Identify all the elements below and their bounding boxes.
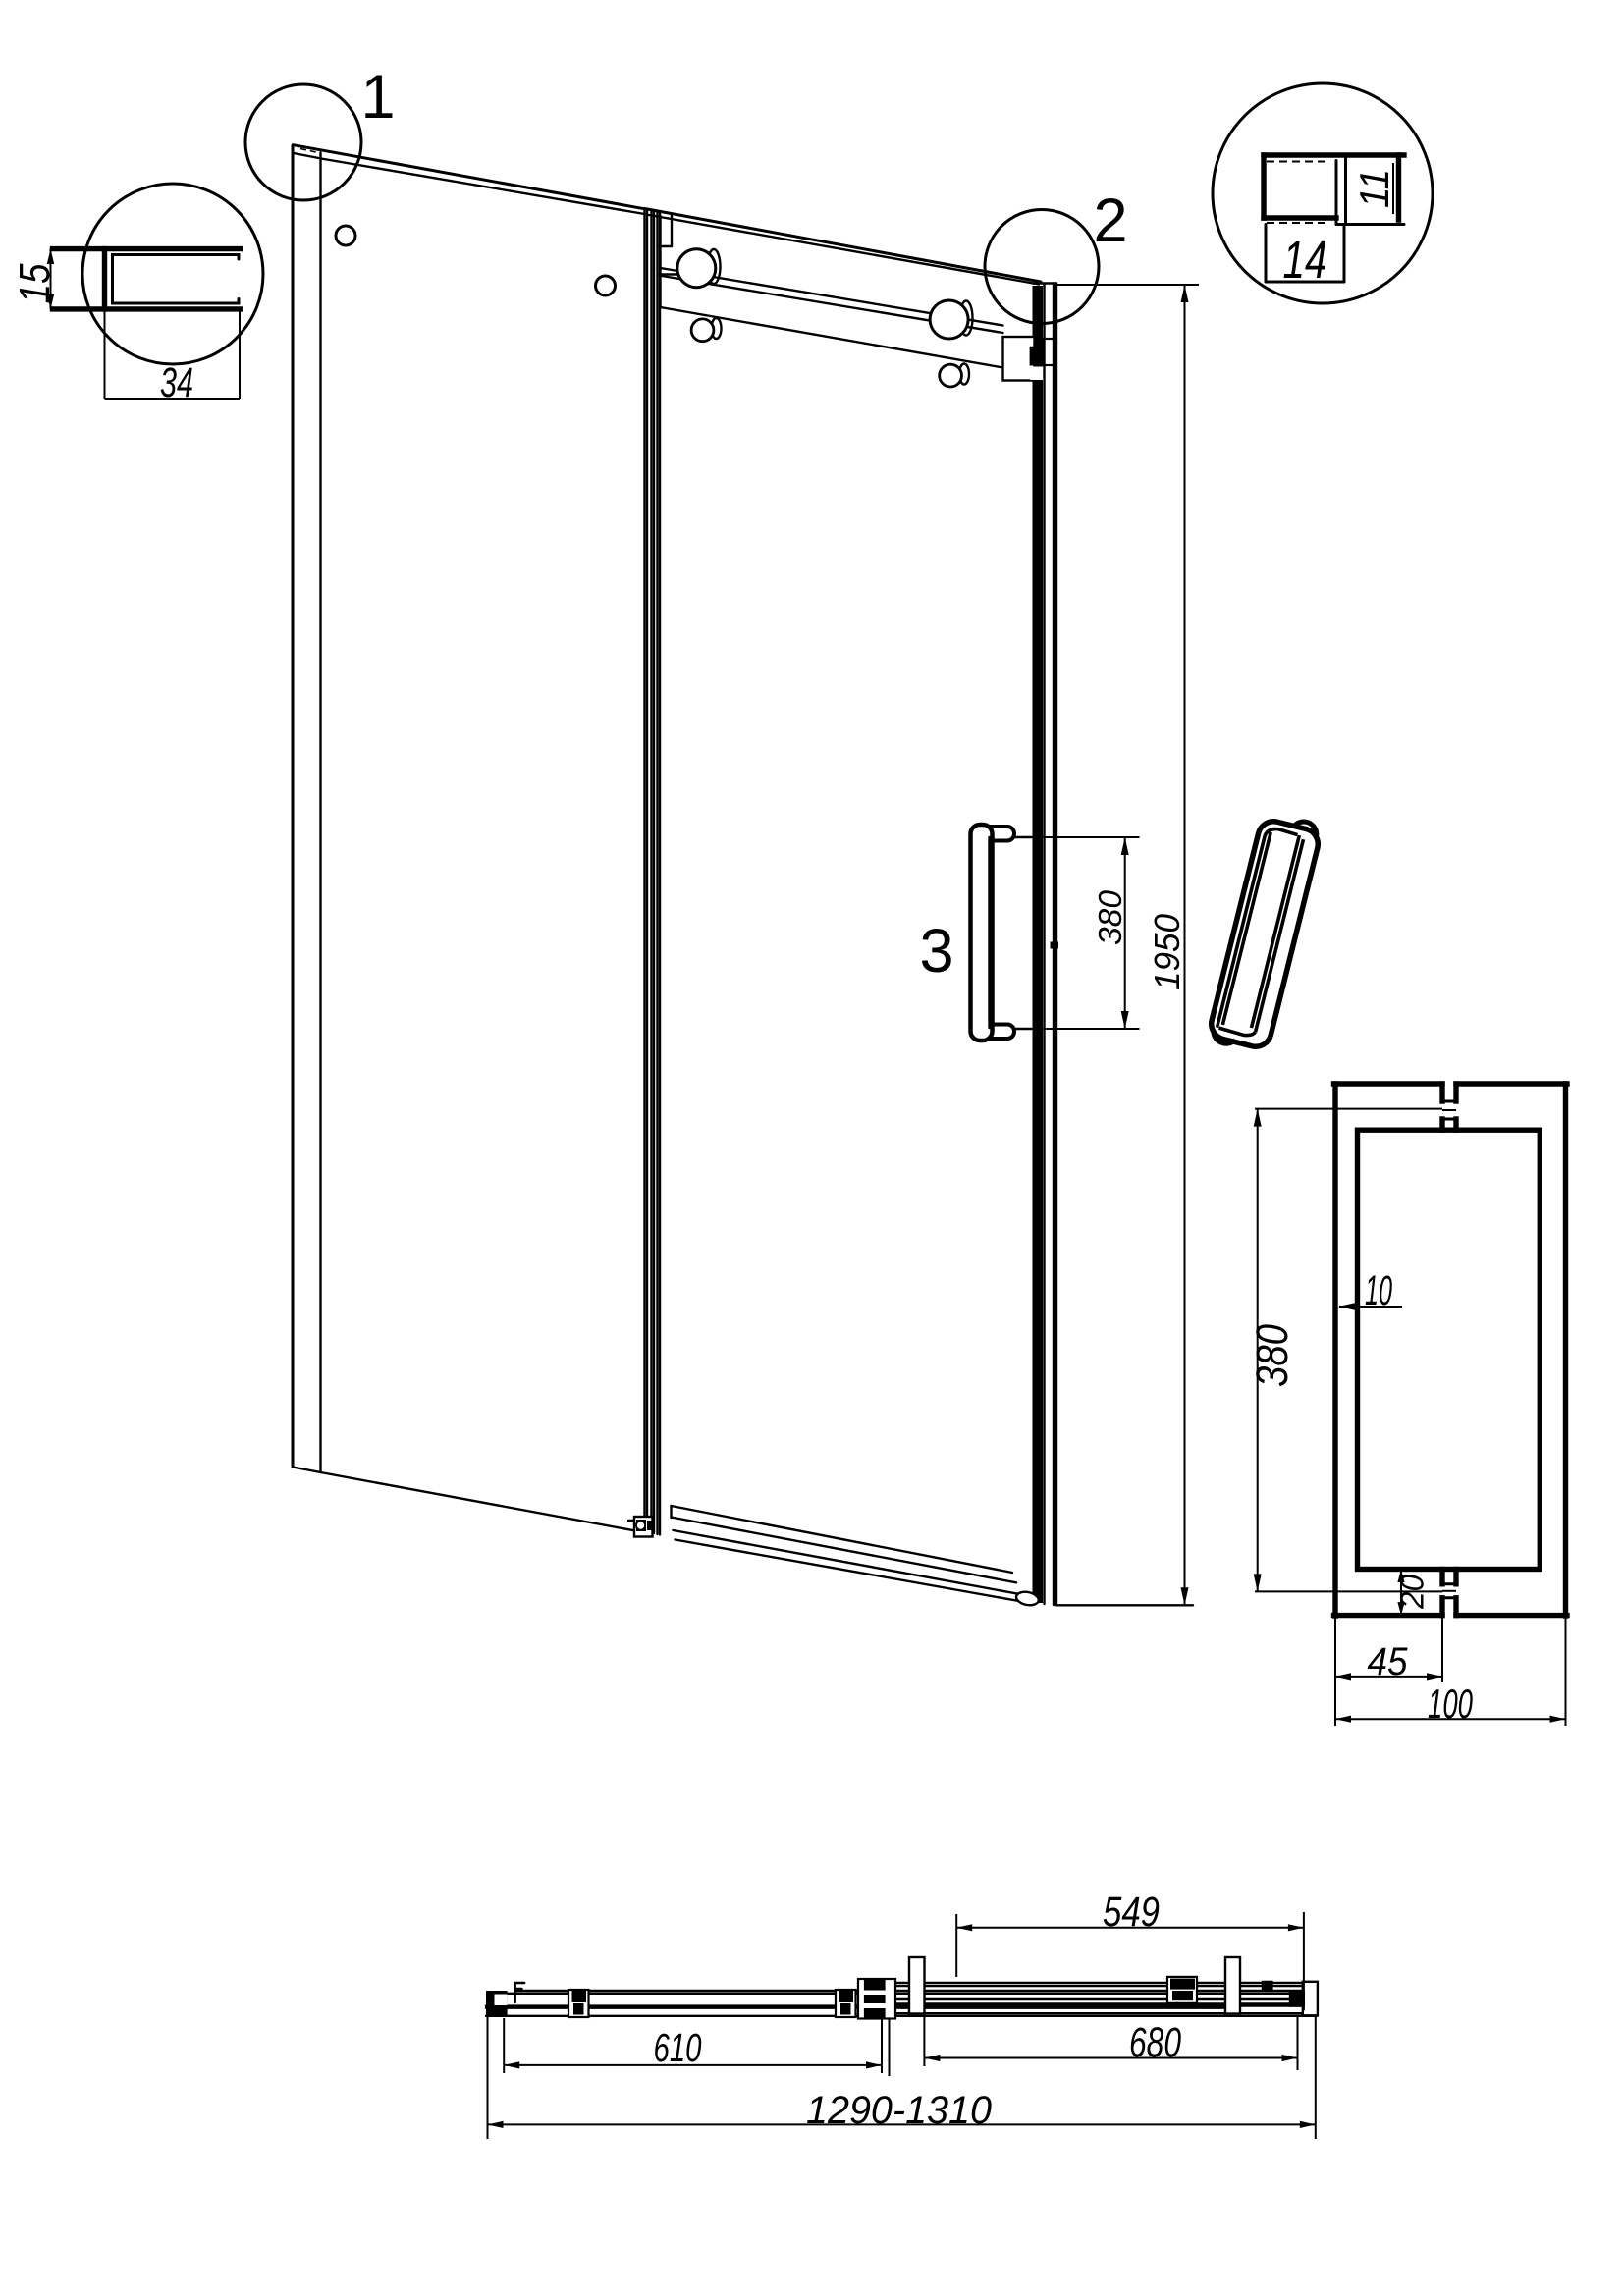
- svg-text:34: 34: [160, 359, 193, 406]
- svg-text:3: 3: [919, 917, 953, 986]
- svg-text:1: 1: [360, 63, 395, 132]
- svg-text:380: 380: [1247, 1324, 1297, 1387]
- svg-text:549: 549: [1103, 1889, 1160, 1936]
- svg-text:610: 610: [654, 2025, 702, 2070]
- svg-text:45: 45: [1368, 1640, 1409, 1683]
- svg-text:680: 680: [1129, 2019, 1181, 2066]
- svg-text:11: 11: [1351, 169, 1397, 208]
- svg-text:10: 10: [1365, 1267, 1392, 1314]
- svg-text:2: 2: [1093, 187, 1127, 255]
- svg-text:15: 15: [11, 263, 59, 303]
- svg-text:14: 14: [1283, 231, 1327, 290]
- svg-text:20: 20: [1394, 1574, 1431, 1610]
- svg-text:100: 100: [1428, 1681, 1473, 1727]
- svg-text:1950: 1950: [1147, 914, 1187, 990]
- svg-text:380: 380: [1092, 889, 1128, 945]
- svg-text:1290-1310: 1290-1310: [806, 2089, 992, 2132]
